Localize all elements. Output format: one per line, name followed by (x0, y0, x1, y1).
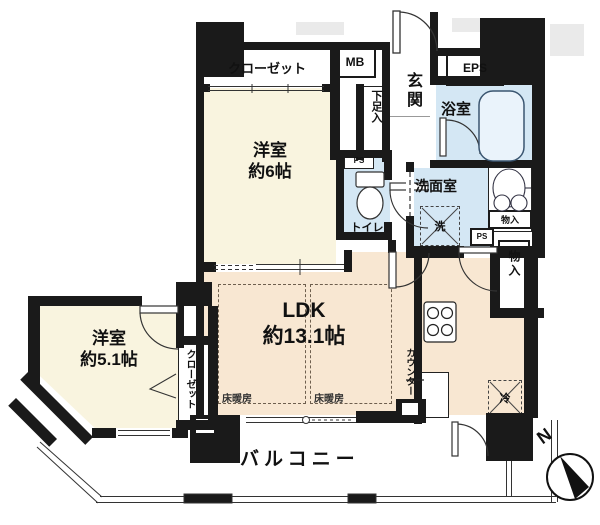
washer-label: 洗 (420, 218, 460, 234)
shoe-box-label: 下足入 (368, 90, 384, 123)
ldk-balcony-window (246, 417, 356, 424)
compass-icon (547, 454, 593, 500)
wall (490, 308, 544, 318)
wall (430, 76, 545, 85)
bedroom6-name: 洋室 (204, 140, 336, 161)
storage-small-label: 物入 (488, 213, 532, 226)
ldk-name: LDK (204, 298, 404, 324)
balcony-label: バルコニー (240, 444, 360, 471)
wall (430, 160, 532, 168)
bedroom6-size: 約6帖 (204, 161, 336, 182)
wall (356, 411, 400, 423)
toilet-label: トイレ (344, 219, 390, 235)
bedroom51-name: 洋室 (40, 328, 178, 349)
wall (336, 150, 344, 240)
genkan-step-line (390, 116, 430, 117)
wall (356, 84, 364, 160)
wall (406, 246, 464, 258)
floor-plan: クローゼット MB 玄関 EPS 浴室 下足入 洋室 約6帖 PS トイレ 洗面… (0, 0, 600, 525)
wall (322, 84, 338, 92)
wall (406, 162, 414, 252)
pillar (486, 413, 533, 461)
compass-north-label: N (533, 424, 556, 449)
wall (384, 150, 392, 180)
fridge-label: 冷 (488, 390, 522, 406)
bathroom-label: 浴室 (441, 98, 471, 119)
wall (344, 250, 352, 272)
wall (244, 42, 390, 50)
window-gap (116, 428, 172, 438)
wall (388, 240, 396, 253)
wall (490, 246, 498, 312)
wall (28, 296, 40, 384)
mb-label: MB (334, 55, 376, 69)
wall (196, 84, 210, 92)
bedroom51-label: 洋室 約5.1帖 (40, 328, 178, 371)
bathroom-floor (436, 84, 532, 166)
adjacent-outline (550, 24, 584, 56)
wall (524, 258, 538, 418)
balcony-door-swing (452, 422, 488, 456)
wall (28, 296, 142, 306)
wall (532, 76, 545, 258)
ldk-label: LDK 約13.1帖 (204, 298, 404, 351)
bedroom51-size: 約5.1帖 (40, 349, 178, 370)
counter-label: カウンター (402, 348, 416, 396)
closet51-label: クローゼット (182, 349, 197, 415)
closet-main-label: クローゼット (206, 58, 328, 77)
wall (196, 50, 204, 418)
wall (176, 420, 218, 430)
bedroom6-label: 洋室 約6帖 (204, 140, 336, 183)
ps-toilet-label: PS (344, 156, 374, 165)
wall (204, 262, 216, 272)
floor-heating-left-label: 床暖房 (222, 390, 252, 405)
washroom-label: 洗面室 (415, 176, 457, 196)
floor-heating-right-label: 床暖房 (314, 390, 344, 405)
pillar-notch (402, 403, 418, 415)
genkan-label: 玄関 (400, 72, 424, 110)
adjacent-outline (296, 22, 344, 35)
wall (430, 12, 438, 84)
storage-tall-label: 物入 (506, 250, 523, 278)
ps-small-label: PS (470, 232, 494, 241)
ldk-size: 約13.1帖 (204, 324, 404, 350)
eps-label: EPS (446, 61, 504, 75)
